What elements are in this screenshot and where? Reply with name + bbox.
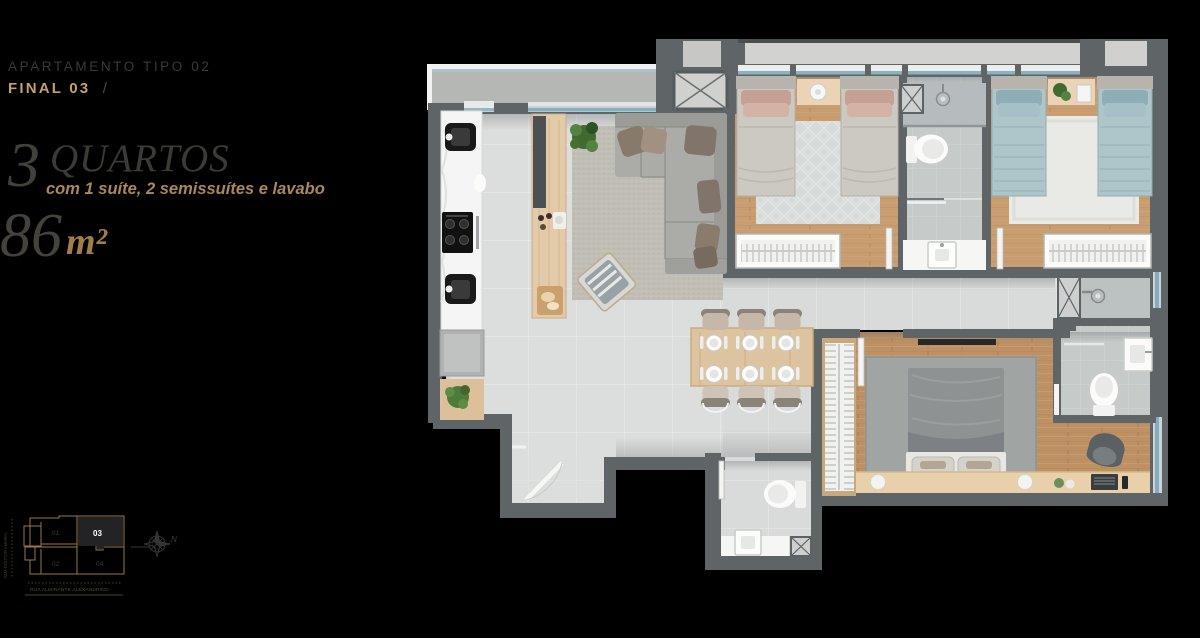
svg-text:APARTAMENTO TIPO 02: APARTAMENTO TIPO 02 [8, 59, 211, 74]
svg-text:04: 04 [96, 561, 104, 568]
svg-text:com 1 suíte, 2 semissuítes e l: com 1 suíte, 2 semissuítes e lavabo [46, 180, 325, 198]
svg-text:03: 03 [93, 529, 102, 538]
svg-text:m²: m² [66, 221, 109, 263]
svg-text:86: 86 [0, 202, 62, 270]
svg-text:01: 01 [52, 530, 60, 537]
svg-text:RUA ALMIRANTE ALEXANDRINO: RUA ALMIRANTE ALEXANDRINO [30, 587, 109, 593]
svg-text:RUA DOUTOR AMARAL: RUA DOUTOR AMARAL [3, 531, 8, 578]
svg-text:3: 3 [7, 129, 40, 200]
svg-text:QUARTOS: QUARTOS [50, 137, 230, 180]
svg-text:02: 02 [52, 561, 60, 568]
svg-text:FINAL 03 /: FINAL 03 / [8, 80, 109, 97]
svg-text:N: N [171, 535, 177, 544]
